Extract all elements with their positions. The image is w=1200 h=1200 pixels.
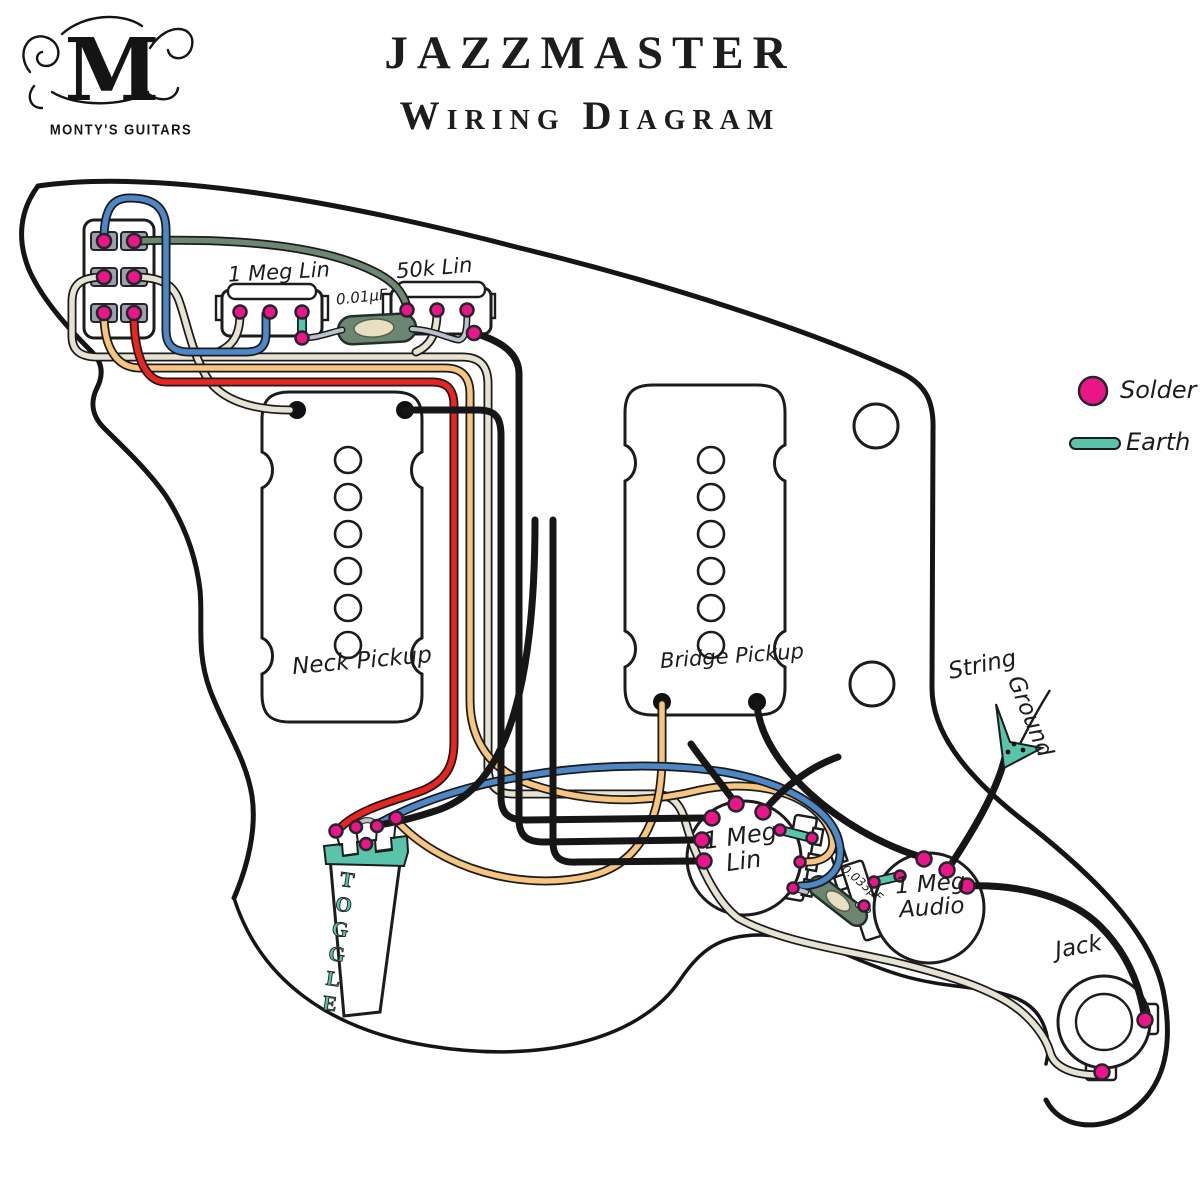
brand-logo: M (23, 17, 192, 121)
solder-dot (705, 811, 720, 826)
label-tone-pot: 1 Meg Audio (884, 869, 977, 923)
solder-dot (371, 820, 383, 832)
diagram-svg: M (0, 0, 1200, 1200)
solder-dot (97, 270, 111, 284)
earth-legend-swatch (1070, 438, 1120, 449)
solder-dot (97, 234, 111, 248)
page-title: JAZZMASTER (340, 26, 840, 80)
solder-dot (127, 270, 141, 284)
solder-dot (127, 306, 141, 320)
solder-dot (431, 304, 444, 317)
page-subtitle: Wiring Diagram (340, 92, 840, 139)
solder-dot (729, 797, 744, 812)
screw-hole-lower (850, 662, 894, 706)
solder-dot (1095, 1065, 1110, 1080)
brand-name: MONTY'S GUITARS (36, 121, 206, 138)
solder-dot (350, 821, 362, 833)
solder-dot (795, 857, 806, 868)
solder-dot (97, 306, 111, 320)
rhythm-capacitor (337, 313, 416, 345)
solder-dot (807, 833, 818, 844)
legend (1070, 377, 1120, 449)
solder-dot (859, 901, 870, 912)
solder-dot (127, 234, 141, 248)
legend-earth-label: Earth (1126, 428, 1190, 456)
page: M (0, 0, 1200, 1200)
solder-dot (1138, 1013, 1153, 1028)
solder-dot (360, 838, 372, 850)
solder-dot (234, 306, 247, 319)
brand-monogram: M (64, 20, 159, 121)
solder-dot (401, 304, 414, 317)
solder-dot (461, 304, 474, 317)
solder-dot (788, 883, 799, 894)
solder-dot (467, 326, 481, 340)
solder-dot (390, 812, 403, 825)
solder-dot (330, 825, 343, 838)
solder-dot (296, 332, 309, 345)
solder-dot (917, 852, 932, 867)
solder-legend-swatch (1079, 377, 1107, 405)
legend-solder-label: Solder (1120, 376, 1196, 404)
solder-dot (264, 306, 277, 319)
solder-dot (296, 306, 309, 319)
screw-hole-upper (854, 404, 898, 448)
